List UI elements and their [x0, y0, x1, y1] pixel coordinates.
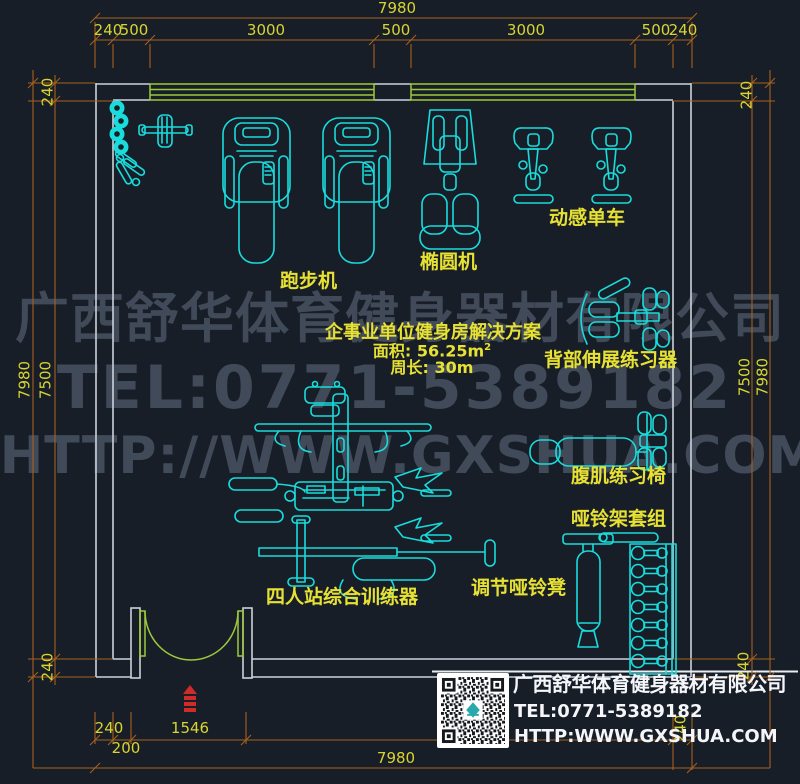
hand-grips [114, 150, 145, 186]
dim-top-seg-1: 240 [94, 23, 123, 38]
dim-left-outer: 7980 [18, 361, 33, 399]
treadmill-2 [323, 118, 390, 263]
plan-title: 企事业单位健身房解决方案 [325, 324, 541, 342]
corner-accessories [110, 101, 193, 186]
label-treadmill: 跑步机 [280, 272, 337, 291]
plan-area: 面积: 56.25m2 [373, 343, 491, 359]
company-url: HTTP:WWW.GXSHUA.COM [514, 728, 778, 746]
dim-top-seg-6: 500 [642, 23, 671, 38]
entrance-marker-icon [183, 685, 197, 712]
multi-station-trainer [229, 382, 495, 600]
dim-left-inner: 7500 [39, 361, 54, 399]
elliptical-machine [420, 110, 480, 249]
window-strips [150, 84, 635, 100]
company-tel: TEL:0771-5389182 [514, 703, 702, 721]
qr-center-logo [463, 700, 482, 719]
back-extension-machine [581, 276, 669, 350]
ab-chair [530, 412, 666, 470]
qr-code [437, 673, 509, 748]
ab-wheel [139, 115, 192, 147]
adjustable-dumbbell-bench [563, 534, 613, 647]
plan-drawing [0, 0, 800, 784]
door-jamb-left [131, 608, 140, 678]
dim-right-top: 240 [740, 81, 755, 110]
label-spin-bike: 动感单车 [549, 209, 625, 228]
spin-bike-2 [592, 128, 631, 203]
spin-bike-1 [514, 128, 553, 203]
dim-right-inner: 7500 [738, 358, 753, 396]
dumbbell-rack [599, 533, 676, 674]
company-name: 广西舒华体育健身器材有限公司 [513, 674, 786, 694]
label-dumbbell-rack: 哑铃架套组 [571, 510, 666, 529]
dim-bottom-door: 1546 [171, 721, 209, 736]
label-dumbbell-bench: 调节哑铃凳 [471, 579, 566, 598]
dim-top-total: 7980 [378, 1, 416, 16]
label-elliptical: 椭圆机 [420, 253, 477, 272]
dim-bottom-total: 7980 [377, 751, 415, 766]
entry-door [140, 611, 243, 660]
dim-top-seg-4: 500 [382, 23, 411, 38]
treadmill-1 [223, 118, 290, 263]
label-multi-station: 四人站综合训练器 [266, 588, 418, 607]
dim-right-outer: 7980 [756, 358, 771, 396]
dim-left-top: 240 [41, 78, 56, 107]
dim-bottom-wall: 240 [95, 721, 124, 736]
dim-top-seg-5: 3000 [507, 23, 545, 38]
dim-top-seg-7: 240 [669, 23, 698, 38]
label-ab-chair: 腹肌练习椅 [571, 467, 666, 486]
door-jamb-right [243, 608, 252, 678]
plan-perimeter: 周长: 30m [391, 360, 474, 376]
cad-floorplan: 广西舒华体育健身器材有限公司 TEL:0771-5389182 HTTP://W… [0, 0, 800, 784]
qr-code-image [441, 677, 505, 744]
plan-area-sup: 2 [484, 342, 491, 353]
dim-left-bottom: 240 [41, 653, 56, 682]
label-back-extension: 背部伸展练习器 [544, 351, 677, 370]
dim-top-seg-3: 3000 [247, 23, 285, 38]
dim-bottom-pier: 200 [112, 741, 141, 756]
dim-top-seg-2: 500 [120, 23, 149, 38]
